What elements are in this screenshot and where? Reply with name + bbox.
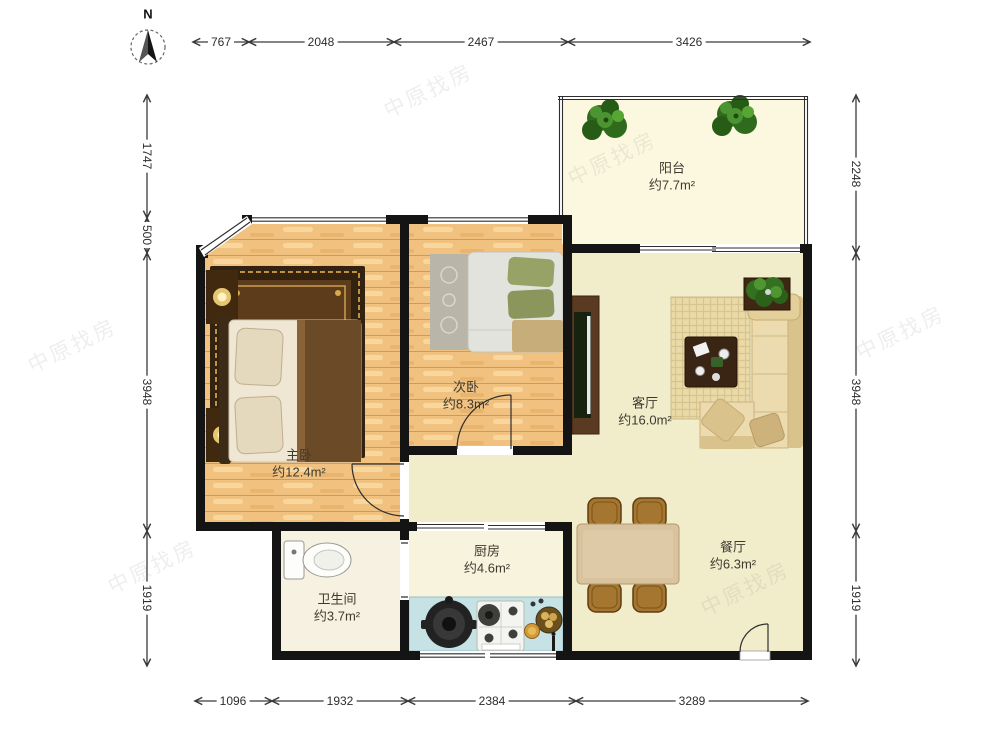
dining-chair (588, 582, 621, 612)
tv-unit (572, 296, 599, 434)
nightstand-lamp (206, 270, 238, 324)
dining-chair (633, 582, 666, 612)
dining-table (577, 524, 679, 584)
second-bed (468, 252, 563, 352)
sliding-door-balcony (640, 244, 800, 253)
coffee-table (685, 337, 737, 387)
master-bed (219, 316, 361, 464)
sliding-door-kitchen (417, 522, 545, 531)
plant-living (744, 277, 790, 310)
north-arrow-icon (131, 30, 165, 64)
gas-stove (477, 601, 524, 651)
floor-plan-canvas: 中原找房 中原找房 中原找房 中原找房 中原找房 中原找房 N 阳台 约7.7m… (0, 0, 1000, 750)
wardrobe-panel (430, 254, 468, 350)
floor-plan-graphic (0, 0, 1000, 750)
toilet (284, 541, 351, 579)
door-bathroom (400, 540, 409, 600)
